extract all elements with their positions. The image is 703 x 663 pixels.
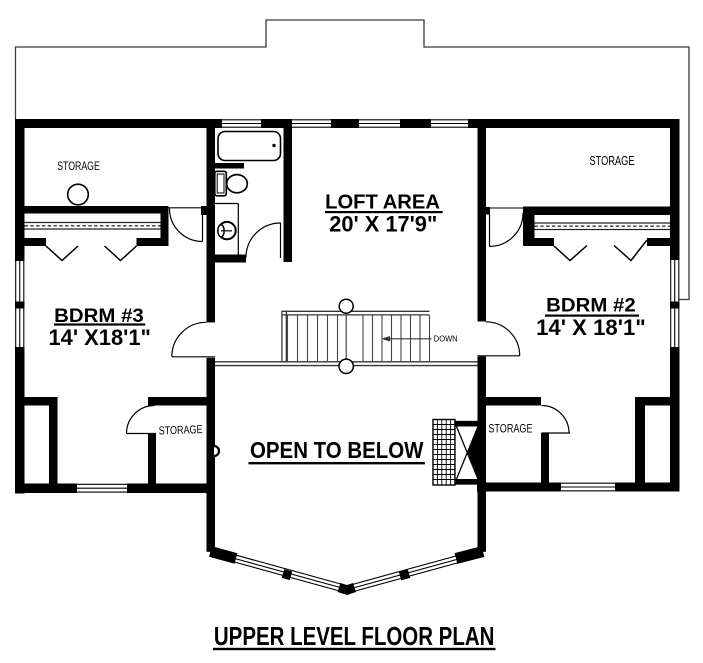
svg-text:14' X 18'1": 14' X 18'1" bbox=[536, 315, 646, 340]
svg-text:20' X 17'9": 20' X 17'9" bbox=[329, 211, 437, 236]
svg-text:BDRM #2: BDRM #2 bbox=[546, 296, 636, 317]
svg-text:STORAGE: STORAGE bbox=[590, 153, 635, 168]
svg-text:LOFT AREA: LOFT AREA bbox=[325, 191, 440, 213]
svg-text:UPPER LEVEL FLOOR PLAN: UPPER LEVEL FLOOR PLAN bbox=[214, 621, 495, 651]
svg-text:14' X18'1": 14' X18'1" bbox=[49, 325, 151, 350]
svg-text:STORAGE: STORAGE bbox=[488, 424, 532, 436]
svg-text:DOWN: DOWN bbox=[434, 334, 458, 344]
svg-text:STORAGE: STORAGE bbox=[159, 424, 203, 438]
svg-text:STORAGE: STORAGE bbox=[57, 161, 100, 173]
svg-text:OPEN TO BELOW: OPEN TO BELOW bbox=[250, 437, 424, 463]
